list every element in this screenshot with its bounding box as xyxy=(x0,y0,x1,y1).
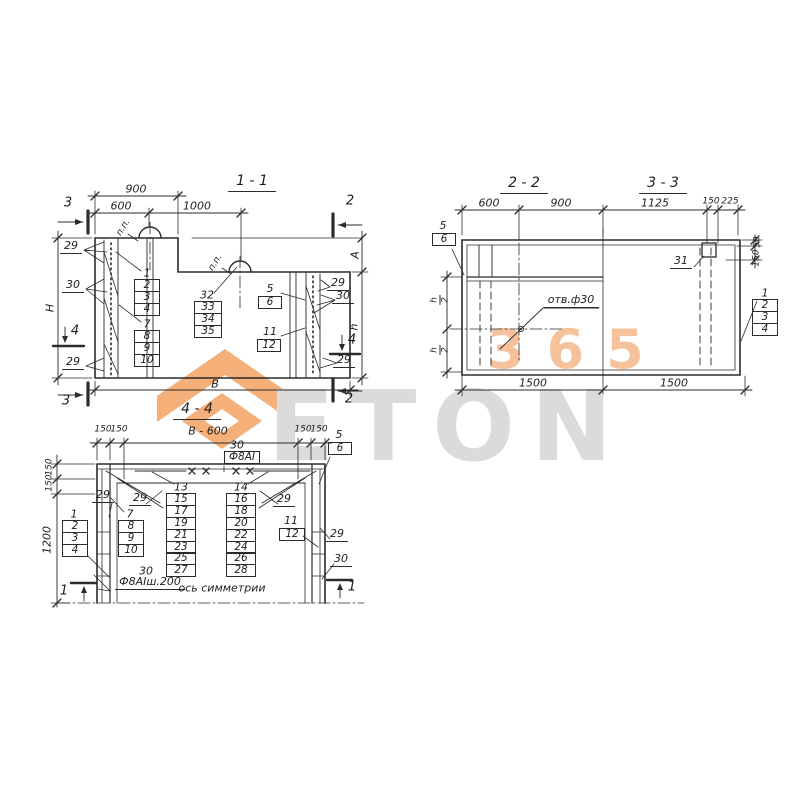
callout-cell: 35 xyxy=(194,325,222,338)
callout-head-1: 1 xyxy=(762,288,769,299)
section-title-1-1: 1 - 1 xyxy=(228,174,276,192)
dim-h-half-upper: h 2 xyxy=(430,295,451,305)
callout-29-right: 29 xyxy=(326,528,348,542)
dim-150: 150 xyxy=(110,426,127,435)
rebar-label-cell: Ф8АI xyxy=(224,451,260,464)
callout-head-14: 14 xyxy=(234,482,248,493)
callout-head-1: 1 xyxy=(144,268,151,279)
callout-stack-2-4: 2 3 4 xyxy=(62,521,88,557)
callout-head-7: 7 xyxy=(144,319,151,330)
dim-h: h xyxy=(349,324,360,331)
dim-50-vert: 50 xyxy=(754,236,763,247)
rebar-label-f8ai: Ф8АI xyxy=(224,452,260,464)
callout-31: 31 xyxy=(670,255,692,269)
callout-head-5: 5 xyxy=(332,429,347,443)
callout-stack-33-35: 33 34 35 xyxy=(194,302,222,338)
dim-1125: 1125 xyxy=(641,198,669,209)
callout-head-5: 5 xyxy=(263,283,278,297)
dim-150: 150 xyxy=(310,426,327,435)
callout-box-12: 12 xyxy=(279,529,305,541)
callout-cell: 4 xyxy=(62,544,88,557)
callout-30-right: 30 xyxy=(330,553,352,567)
callout-29-left: 29 xyxy=(92,489,114,503)
callout-cell: 12 xyxy=(257,339,281,352)
rebar-label-f8ai-step200: Ф8АIш.200 xyxy=(115,576,185,590)
dim-1500-right: 1500 xyxy=(660,378,688,389)
dim-1200: 1200 xyxy=(42,526,53,554)
dim-600: 600 xyxy=(479,198,500,209)
cut-marker-1-right: 1 xyxy=(348,581,356,594)
dim-1000: 1000 xyxy=(183,201,211,212)
callout-head-5: 5 xyxy=(436,220,451,234)
dim-h-half-lower: h 2 xyxy=(430,345,451,355)
hole-label-otv-f30: отв.ф30 xyxy=(544,294,599,308)
callout-cell: 4 xyxy=(752,323,778,336)
callout-box-12: 12 xyxy=(257,340,281,352)
callout-stack-odd-15-27: 15 17 19 21 23 25 27 xyxy=(166,494,196,577)
callout-box-6: 6 xyxy=(258,297,282,309)
cut-marker-2-top: 2 xyxy=(346,195,354,208)
cut-marker-4-left: 4 xyxy=(71,325,79,338)
section-title-3-3: 3 - 3 xyxy=(639,176,687,194)
axis-of-symmetry-label: ось симметрии xyxy=(178,583,265,594)
dim-150-vert: 150 xyxy=(753,249,762,266)
callout-30-right: 30 xyxy=(332,290,354,304)
cut-marker-3-bottom: 3 xyxy=(62,395,70,408)
section-2-2-3-3-linework xyxy=(441,205,762,396)
dim-900: 900 xyxy=(551,198,572,209)
dim-225: 225 xyxy=(721,198,738,207)
section-title-2-2: 2 - 2 xyxy=(500,176,548,194)
dim-1500-left: 1500 xyxy=(519,378,547,389)
callout-29-top-left: 29 xyxy=(60,240,82,254)
callout-stack-2-4: 2 3 4 xyxy=(134,280,160,316)
callout-29-center-right: 29 xyxy=(273,493,295,507)
callout-head-32: 32 xyxy=(200,290,214,301)
callout-cell: 28 xyxy=(226,564,256,577)
callout-stack-8-10: 8 9 10 xyxy=(118,521,144,557)
fraction-denominator: 2 xyxy=(440,345,451,355)
callout-30-top: 30 xyxy=(230,440,244,451)
callout-29-bottom-right: 29 xyxy=(333,354,355,368)
cut-marker-1-left: 1 xyxy=(60,585,68,598)
callout-head-1: 1 xyxy=(71,509,78,520)
fraction-numerator: h xyxy=(430,297,440,303)
callout-29-bottom-left: 29 xyxy=(62,356,84,370)
dim-150: 150 xyxy=(702,198,719,207)
section-title-4-4: 4 - 4 xyxy=(173,402,221,420)
cut-marker-3-top: 3 xyxy=(64,197,72,210)
callout-29-center-left: 29 xyxy=(129,492,151,506)
dim-900: 900 xyxy=(126,184,147,195)
callout-box-6: 6 xyxy=(432,234,456,246)
callout-cell: 6 xyxy=(258,296,282,309)
dim-B-600: В - 600 xyxy=(188,426,228,437)
callout-head-11: 11 xyxy=(280,515,302,529)
cut-marker-2-bottom: 2 xyxy=(345,393,353,406)
dim-150: 150 xyxy=(94,426,111,435)
callout-head-13: 13 xyxy=(174,482,188,493)
dim-A: А xyxy=(350,251,361,259)
dim-600: 600 xyxy=(111,201,132,212)
callout-stack-8-10: 8 9 10 xyxy=(134,331,160,367)
callout-cell: 10 xyxy=(134,354,160,367)
callout-head-7: 7 xyxy=(127,509,134,520)
callout-head-11: 11 xyxy=(259,326,281,340)
blueprint-page: 365 ETON xyxy=(0,0,800,800)
dim-150-vert: 150 xyxy=(46,458,55,475)
dim-150: 150 xyxy=(294,426,311,435)
callout-box-6: 6 xyxy=(328,443,352,455)
callout-cell: 4 xyxy=(134,303,160,316)
callout-cell: 6 xyxy=(432,233,456,246)
dim-width-B: В xyxy=(211,379,219,390)
dim-height-H: Н xyxy=(45,304,56,312)
callout-cell: 10 xyxy=(118,544,144,557)
callout-stack-2-4: 2 3 4 xyxy=(752,300,778,336)
fraction-numerator: h xyxy=(430,347,440,353)
callout-stack-even-16-28: 16 18 20 22 24 26 28 xyxy=(226,494,256,577)
fraction-denominator: 2 xyxy=(440,295,451,305)
dim-150-vert: 150 xyxy=(46,474,55,491)
callout-cell: 6 xyxy=(328,442,352,455)
cut-marker-4-right: 4 xyxy=(348,334,356,347)
callout-cell: 12 xyxy=(279,528,305,541)
drawing-linework xyxy=(0,0,800,800)
callout-30-left: 30 xyxy=(62,279,84,293)
